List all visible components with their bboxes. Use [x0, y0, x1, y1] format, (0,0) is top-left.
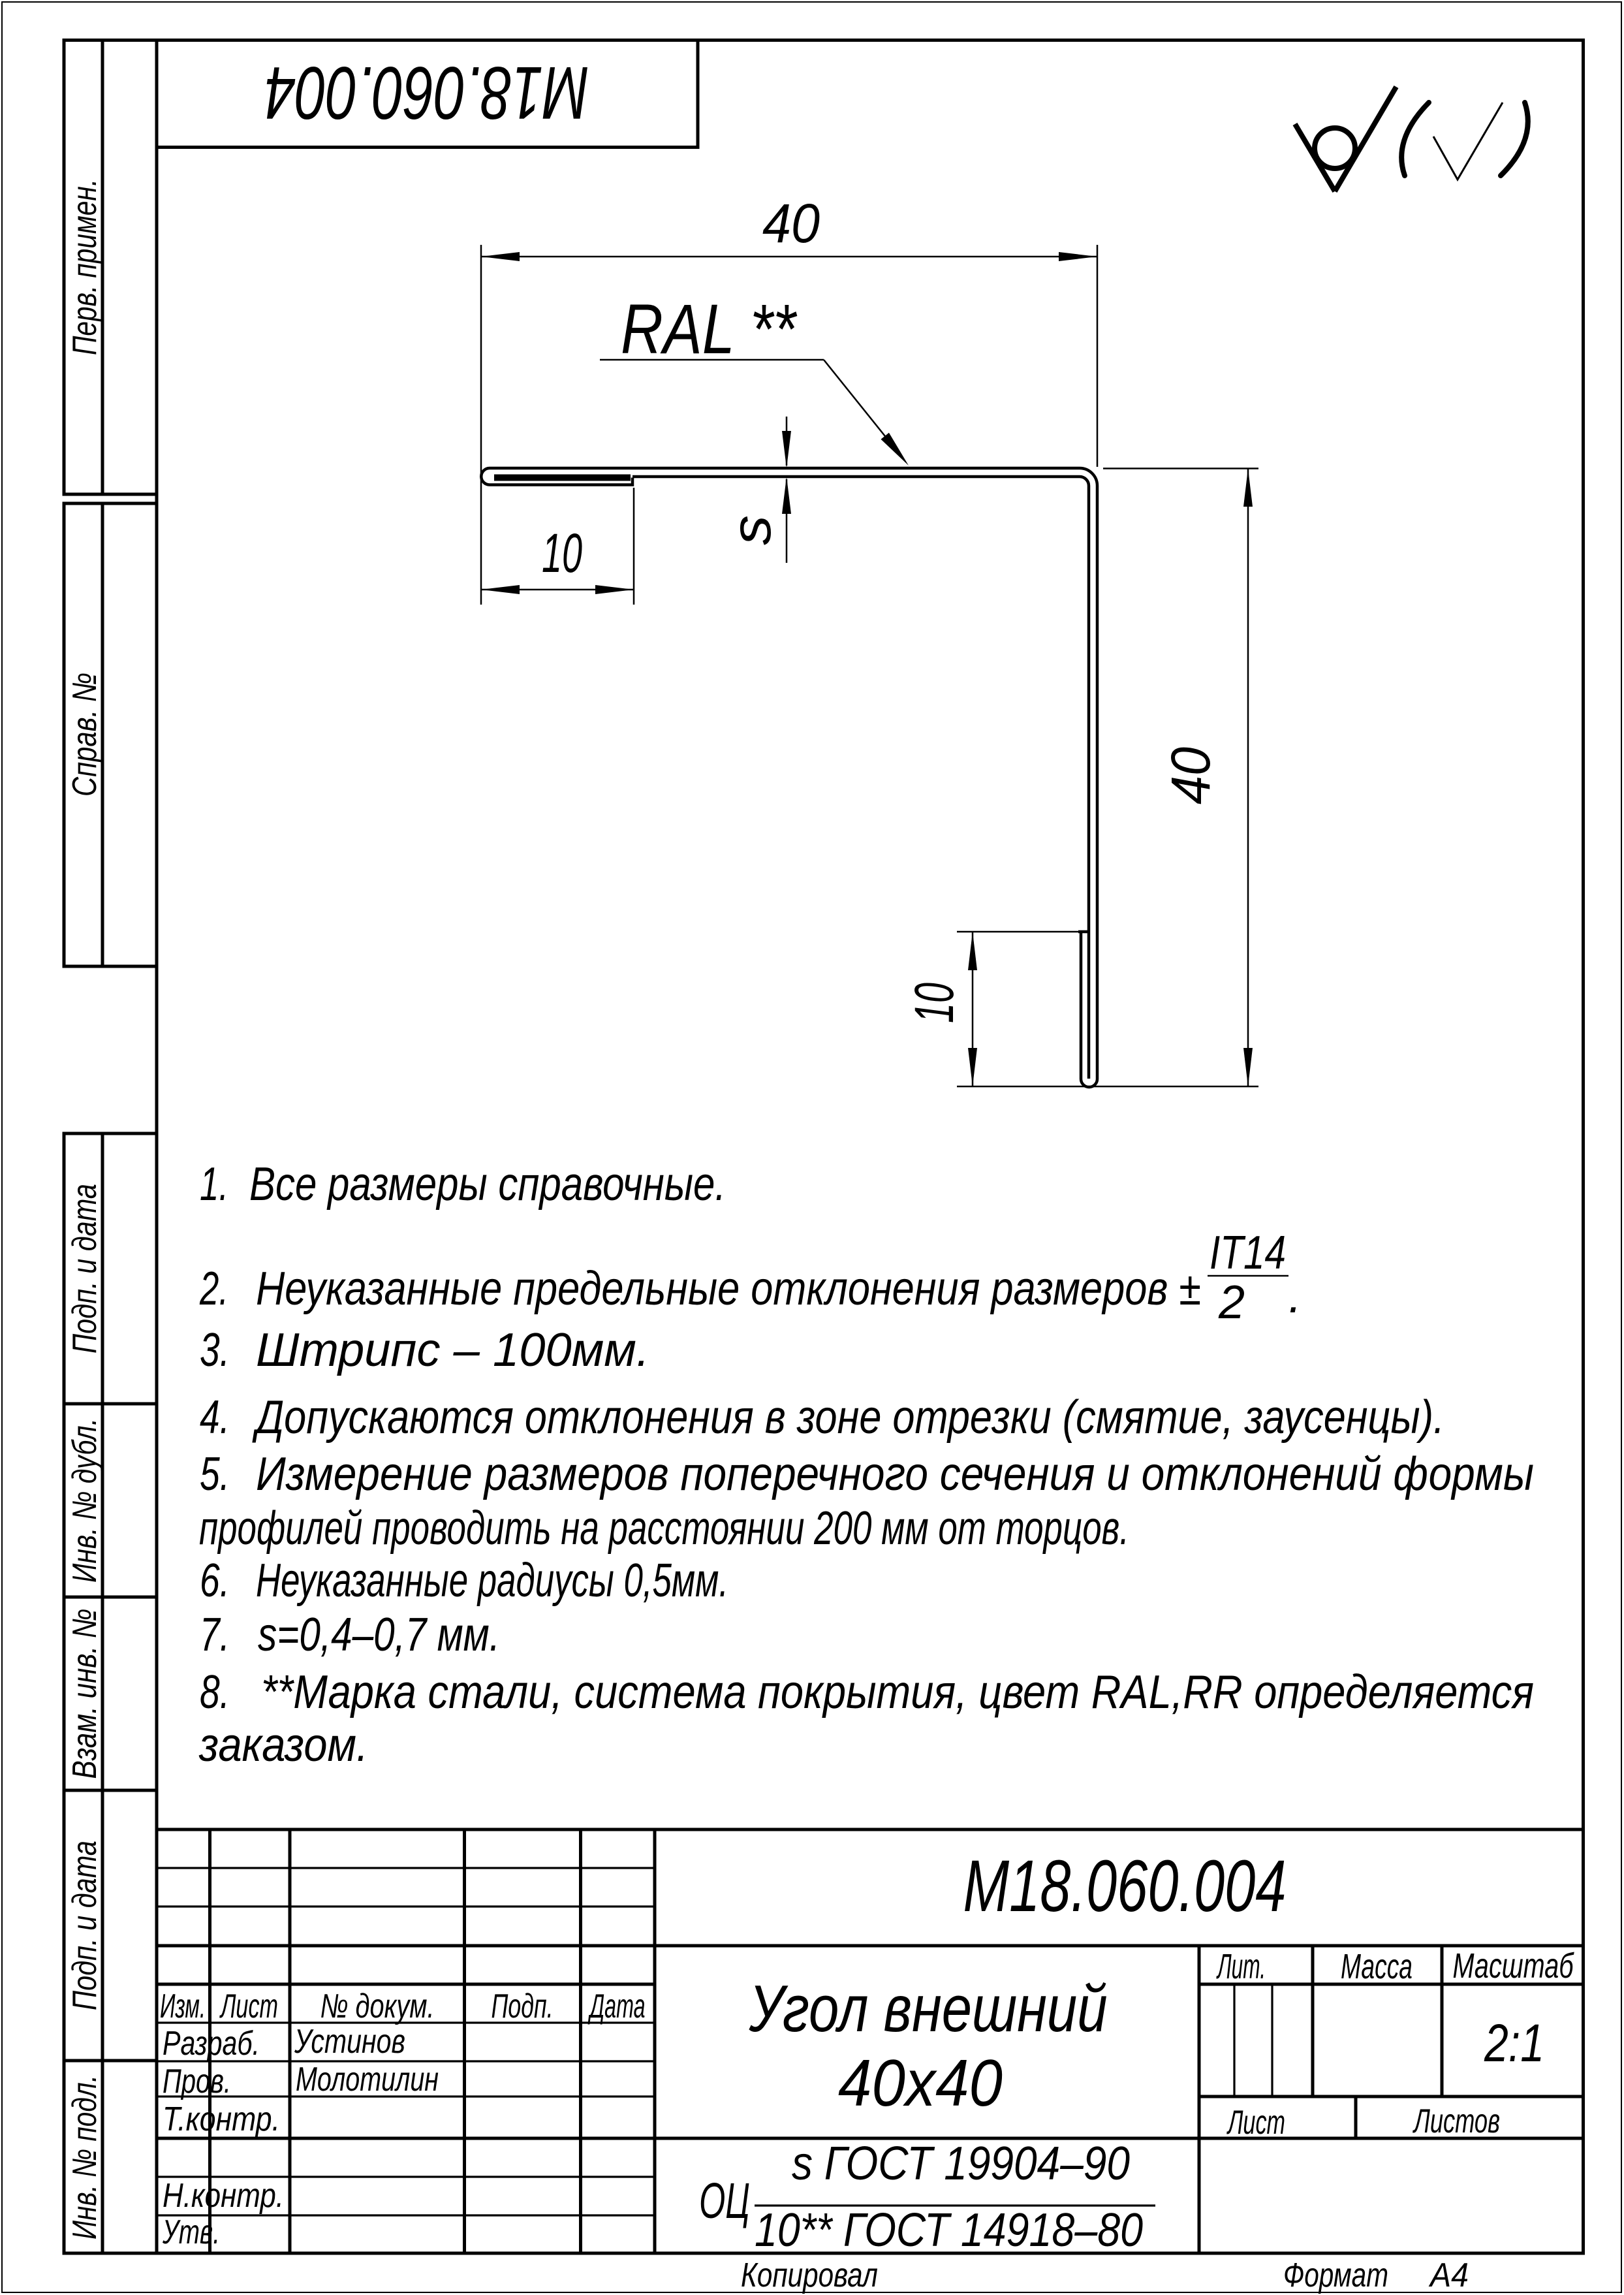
- svg-text:Допускаются отклонения в зоне: Допускаются отклонения в зоне отрезки (с…: [252, 1391, 1444, 1444]
- svg-text:Изм.: Изм.: [160, 1987, 206, 2025]
- svg-text:Разраб.: Разраб.: [163, 2025, 260, 2063]
- svg-text:ОЦ: ОЦ: [699, 2173, 750, 2229]
- svg-text:Перв. примен.: Перв. примен.: [66, 179, 104, 355]
- svg-text:М18.060.004: М18.060.004: [963, 1845, 1287, 1927]
- svg-text:7.: 7.: [200, 1609, 230, 1661]
- svg-text:40: 40: [762, 193, 820, 254]
- svg-text:Масса: Масса: [1341, 1947, 1413, 1986]
- svg-text:Лист: Лист: [1226, 2104, 1285, 2142]
- svg-text:Подп. и дата: Подп. и дата: [66, 1184, 104, 1353]
- svg-text:Инв. № подл.: Инв. № подл.: [66, 2075, 104, 2240]
- svg-text:заказом.: заказом.: [198, 1719, 368, 1771]
- svg-text:Лист: Лист: [219, 1987, 278, 2025]
- svg-text:10: 10: [542, 522, 582, 584]
- svg-text:Т.контр.: Т.контр.: [163, 2100, 280, 2138]
- svg-text:Копировал: Копировал: [741, 2256, 878, 2294]
- svg-text:.: .: [1288, 1271, 1302, 1323]
- svg-text:Штрипс – 100мм.: Штрипс – 100мм.: [256, 1324, 649, 1376]
- svg-text:s=0,4–0,7 мм.: s=0,4–0,7 мм.: [258, 1609, 500, 1661]
- svg-text:2: 2: [1218, 1276, 1245, 1329]
- svg-text:Неуказанные предельные отклоне: Неуказанные предельные отклонения размер…: [256, 1263, 1201, 1315]
- svg-text:Устинов: Устинов: [294, 2023, 405, 2061]
- svg-text:Дата: Дата: [587, 1987, 645, 2025]
- svg-text:**Марка стали, система покрыти: **Марка стали, система покрытия, цвет RA…: [261, 1666, 1534, 1718]
- svg-text:Инв. № дубл.: Инв. № дубл.: [66, 1418, 104, 1583]
- svg-text:профилей проводить на расстоян: профилей проводить на расстоянии 200 мм …: [199, 1502, 1129, 1555]
- svg-text:RAL **: RAL **: [621, 289, 797, 368]
- svg-text:№ докум.: № докум.: [320, 1987, 435, 2025]
- svg-text:Молотилин: Молотилин: [296, 2061, 439, 2098]
- svg-text:2:1: 2:1: [1484, 2014, 1544, 2073]
- svg-text:Все размеры справочные.: Все размеры справочные.: [249, 1158, 726, 1211]
- svg-text:Н.контр.: Н.контр.: [163, 2177, 284, 2215]
- svg-text:40: 40: [1160, 747, 1221, 804]
- svg-text:4.: 4.: [200, 1391, 230, 1444]
- svg-text:Пров.: Пров.: [163, 2063, 231, 2100]
- svg-text:Измерение размеров поперечного: Измерение размеров поперечного сечения и…: [256, 1448, 1534, 1500]
- svg-text:Утв.: Утв.: [162, 2213, 220, 2251]
- svg-text:Неуказанные радиусы 0,5мм.: Неуказанные радиусы 0,5мм.: [256, 1555, 728, 1607]
- svg-text:s ГОСТ 19904–90: s ГОСТ 19904–90: [792, 2138, 1130, 2190]
- svg-text:s: s: [720, 515, 783, 545]
- svg-text:6.: 6.: [200, 1555, 230, 1607]
- svg-text:Взам. инв. №: Взам. инв. №: [66, 1609, 104, 1779]
- svg-text:Лит.: Лит.: [1216, 1947, 1266, 1986]
- svg-text:Листов: Листов: [1413, 2102, 1500, 2140]
- svg-text:Угол внешний: Угол внешний: [749, 1972, 1108, 2046]
- svg-text:8.: 8.: [200, 1666, 230, 1718]
- svg-text:Масштаб: Масштаб: [1453, 1946, 1574, 1986]
- svg-text:IT14: IT14: [1210, 1227, 1286, 1279]
- svg-text:10: 10: [903, 983, 965, 1023]
- svg-text:2.: 2.: [199, 1263, 228, 1315]
- svg-text:40х40: 40х40: [838, 2047, 1003, 2120]
- svg-text:Формат: Формат: [1283, 2256, 1388, 2294]
- svg-text:Подп.: Подп.: [492, 1987, 554, 2025]
- svg-text:1.: 1.: [200, 1158, 228, 1211]
- svg-text:Подп. и дата: Подп. и дата: [66, 1841, 104, 2010]
- svg-text:10** ГОСТ 14918–80: 10** ГОСТ 14918–80: [755, 2204, 1143, 2256]
- svg-text:3.: 3.: [200, 1324, 230, 1376]
- svg-text:М18.060.004: М18.060.004: [265, 51, 589, 134]
- svg-text:5.: 5.: [200, 1448, 230, 1500]
- svg-text:А4: А4: [1428, 2256, 1469, 2294]
- svg-text:Справ. №: Справ. №: [66, 673, 104, 797]
